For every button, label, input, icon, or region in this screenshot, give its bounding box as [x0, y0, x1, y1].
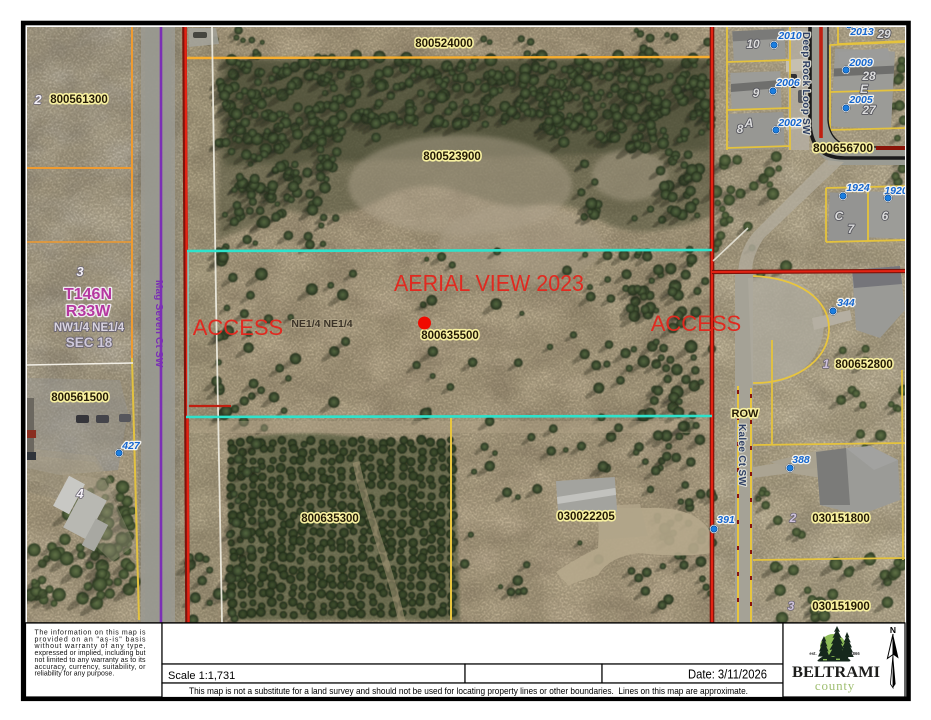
svg-text:800652800: 800652800: [835, 359, 893, 371]
svg-text:28: 28: [861, 69, 876, 83]
svg-text:ACCESS: ACCESS: [651, 311, 741, 336]
svg-text:427: 427: [121, 440, 141, 452]
svg-text:2013: 2013: [849, 26, 874, 38]
svg-text:NW1/4 NE1/4: NW1/4 NE1/4: [54, 322, 125, 334]
svg-text:030022205: 030022205: [557, 511, 615, 523]
svg-text:800656700: 800656700: [813, 141, 873, 155]
svg-text:2: 2: [33, 92, 42, 107]
svg-text:4: 4: [75, 486, 84, 501]
svg-text:344: 344: [837, 297, 855, 309]
svg-text:2010: 2010: [777, 30, 802, 42]
svg-text:ACCESS: ACCESS: [193, 315, 283, 340]
svg-text:9: 9: [753, 86, 760, 100]
svg-text:2002: 2002: [777, 117, 802, 129]
svg-text:8: 8: [737, 122, 744, 136]
svg-text:030151900: 030151900: [812, 601, 870, 613]
svg-text:1: 1: [823, 357, 830, 371]
svg-text:800561500: 800561500: [51, 392, 109, 404]
svg-text:10: 10: [746, 37, 760, 51]
svg-text:est.: est.: [809, 651, 816, 656]
svg-text:800635300: 800635300: [301, 513, 359, 525]
svg-text:NE1/4 NE1/4: NE1/4 NE1/4: [291, 318, 352, 330]
svg-text:C: C: [835, 209, 844, 223]
svg-text:030151800: 030151800: [812, 513, 870, 525]
svg-text:3: 3: [788, 599, 795, 613]
svg-text:AERIAL VIEW 2023: AERIAL VIEW 2023: [394, 270, 584, 296]
svg-text:2: 2: [789, 511, 797, 525]
svg-text:ROW: ROW: [732, 408, 760, 420]
svg-text:Kalee Ct SW: Kalee Ct SW: [736, 424, 747, 486]
svg-text:E: E: [860, 82, 869, 96]
svg-text:1866: 1866: [850, 651, 860, 656]
svg-text:reliability for any purpose.: reliability for any purpose.: [35, 671, 115, 678]
svg-text:800635500: 800635500: [421, 330, 479, 342]
svg-text:A: A: [744, 116, 754, 130]
svg-text:29: 29: [876, 27, 891, 41]
svg-text:800561300: 800561300: [50, 94, 108, 106]
svg-text:388: 388: [792, 454, 810, 466]
svg-text:1924: 1924: [846, 182, 870, 194]
svg-text:T146N: T146N: [64, 286, 112, 303]
svg-text:Mag Seven Ct SW: Mag Seven Ct SW: [153, 280, 164, 368]
svg-text:391: 391: [717, 514, 735, 526]
svg-text:2009: 2009: [848, 57, 873, 69]
svg-text:3: 3: [76, 264, 84, 279]
svg-text:SEC 18: SEC 18: [66, 335, 113, 350]
svg-text:county: county: [815, 678, 855, 693]
svg-text:Date: 3/11/2026: Date: 3/11/2026: [688, 668, 767, 682]
svg-text:R33W: R33W: [66, 303, 111, 320]
svg-text:27: 27: [861, 103, 877, 117]
svg-text:Scale 1:1,731: Scale 1:1,731: [168, 670, 235, 682]
svg-text:N: N: [890, 625, 896, 635]
svg-text:2006: 2006: [775, 77, 800, 89]
svg-text:800523900: 800523900: [423, 151, 481, 163]
svg-text:6: 6: [882, 209, 889, 223]
svg-text:800524000: 800524000: [415, 38, 473, 50]
svg-text:This map is not a substitute f: This map is not a substitute for a land …: [189, 686, 748, 696]
